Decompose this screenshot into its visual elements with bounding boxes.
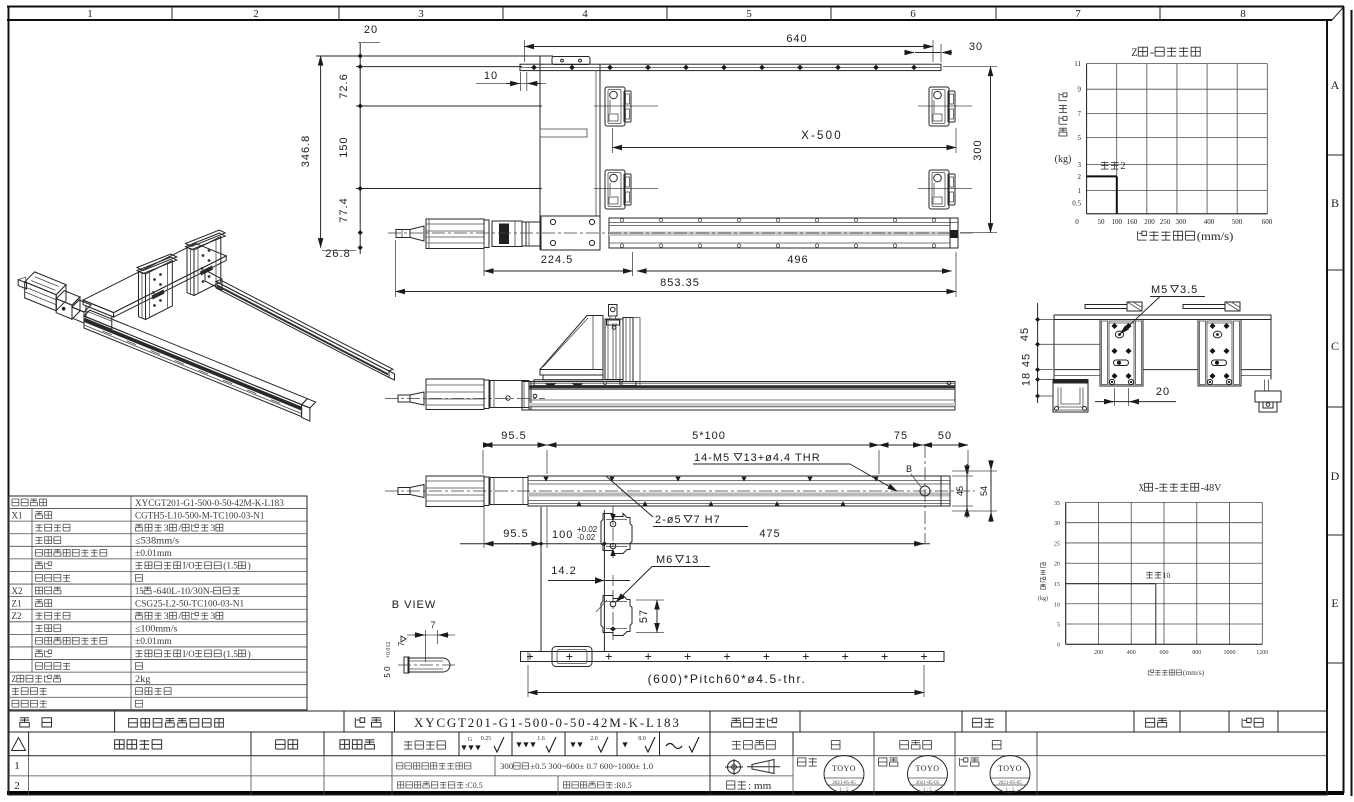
svg-text:2.0: 2.0	[590, 736, 598, 742]
svg-text:X2: X2	[12, 586, 23, 596]
svg-text:X: X	[1139, 483, 1145, 494]
svg-text:C: C	[1331, 339, 1339, 353]
svg-text:XYCGT201-G1-500-0-50-42M-K-L18: XYCGT201-G1-500-0-50-42M-K-L183	[414, 715, 681, 730]
svg-text:7: 7	[1075, 8, 1081, 20]
svg-text:10: 10	[484, 70, 498, 82]
svg-text:95.5: 95.5	[501, 430, 526, 442]
svg-text:2: 2	[14, 780, 20, 792]
svg-text:CSG25-L2-50-TC100-03-N1: CSG25-L2-50-TC100-03-N1	[135, 598, 245, 608]
svg-text:10: 10	[1163, 570, 1170, 580]
svg-text:13+ø4.4 THR: 13+ø4.4 THR	[744, 452, 821, 464]
svg-text:1.6: 1.6	[537, 736, 545, 742]
svg-text:±0.01mm: ±0.01mm	[135, 636, 172, 646]
svg-text:-640L-10/30N-: -640L-10/30N-	[153, 586, 213, 596]
svg-text:5: 5	[1078, 134, 1082, 142]
svg-text:20: 20	[1054, 562, 1060, 568]
svg-text:7: 7	[1078, 110, 1082, 118]
svg-text:4: 4	[582, 8, 588, 20]
svg-text:400: 400	[1204, 218, 1215, 226]
svg-text:I/O: I/O	[183, 649, 195, 659]
svg-text:2021-05-05: 2021-05-05	[916, 781, 940, 786]
svg-text:200: 200	[1094, 650, 1103, 656]
svg-text:5: 5	[746, 8, 752, 20]
svg-text:: mm: : mm	[748, 780, 772, 792]
svg-text:TOYO: TOYO	[998, 764, 1022, 773]
svg-text:5: 5	[1057, 623, 1060, 629]
svg-text:/: /	[178, 611, 182, 621]
svg-text:100: 100	[1112, 218, 1123, 226]
svg-text:853.35: 853.35	[660, 277, 700, 289]
svg-text:9: 9	[1078, 86, 1082, 94]
svg-text:M6: M6	[656, 554, 673, 566]
svg-text:346.8: 346.8	[300, 135, 312, 168]
svg-text:3: 3	[210, 611, 216, 621]
svg-text:CGTH5-L10-500-M-TC100-03-N1: CGTH5-L10-500-M-TC100-03-N1	[135, 510, 265, 520]
svg-text:±0.5 300~600± 0.7 600~1000±: ±0.5 300~600± 0.7 600~1000± 1.0	[530, 761, 653, 771]
svg-text:G: G	[468, 737, 473, 743]
svg-text:1: 1	[87, 8, 93, 20]
svg-text:0.5: 0.5	[1072, 199, 1081, 207]
svg-text:0: 0	[1057, 642, 1060, 648]
svg-text:150: 150	[338, 136, 350, 157]
svg-text:0.25: 0.25	[481, 736, 492, 742]
svg-text:Z2: Z2	[12, 611, 22, 621]
svg-text:11: 11	[1074, 60, 1081, 68]
svg-text:B VIEW: B VIEW	[392, 599, 437, 611]
svg-text:2-ø5: 2-ø5	[655, 514, 682, 526]
svg-text:0: 0	[1075, 218, 1079, 226]
svg-text:72.6: 72.6	[338, 73, 350, 98]
svg-text:TOYO: TOYO	[832, 764, 856, 773]
svg-text:TOYO: TOYO	[915, 764, 939, 773]
svg-text:3: 3	[164, 611, 170, 621]
svg-text:45: 45	[1021, 353, 1033, 367]
svg-text:20: 20	[364, 24, 378, 36]
svg-text:475: 475	[759, 528, 780, 540]
svg-text:2021-05-05: 2021-05-05	[998, 781, 1022, 786]
svg-text:B: B	[906, 464, 912, 474]
svg-text:): )	[248, 649, 251, 659]
svg-text:+0.012: +0.012	[386, 642, 392, 659]
svg-text:200: 200	[1144, 218, 1155, 226]
svg-text:I/O: I/O	[183, 561, 195, 571]
svg-text:3: 3	[210, 523, 216, 533]
svg-text:45: 45	[955, 486, 965, 496]
svg-text:77.4: 77.4	[338, 197, 350, 222]
svg-text:5 0: 5 0	[383, 666, 392, 678]
svg-text:-48V: -48V	[1201, 483, 1222, 494]
svg-text:1000: 1000	[1224, 650, 1236, 656]
svg-text:26.8: 26.8	[325, 248, 350, 260]
svg-text:-: -	[1150, 45, 1155, 59]
svg-text:7 H7: 7 H7	[694, 514, 721, 526]
svg-text:50: 50	[938, 430, 952, 442]
svg-text:(1.5: (1.5	[223, 561, 238, 571]
svg-text:3: 3	[164, 523, 170, 533]
svg-text:2: 2	[1078, 173, 1082, 181]
svg-text:10: 10	[1054, 602, 1060, 608]
svg-text:X1: X1	[12, 510, 23, 520]
svg-text:8.0: 8.0	[638, 736, 646, 742]
svg-text::C0.5: :C0.5	[465, 780, 483, 790]
svg-text:/: /	[178, 523, 182, 533]
svg-text:25: 25	[1054, 541, 1060, 547]
svg-text:5*100: 5*100	[692, 430, 726, 442]
svg-text:30: 30	[1054, 521, 1060, 527]
svg-text:95.5: 95.5	[503, 528, 528, 540]
svg-text:≤538mm/s: ≤538mm/s	[135, 536, 179, 546]
svg-text:2021-05-05: 2021-05-05	[832, 781, 856, 786]
svg-text:57: 57	[638, 609, 650, 623]
svg-text:±0.01mm: ±0.01mm	[135, 548, 172, 558]
svg-text:15: 15	[135, 586, 144, 596]
svg-text:-: -	[1155, 483, 1160, 494]
svg-text:160: 160	[1127, 218, 1138, 226]
svg-text:600: 600	[1262, 218, 1273, 226]
svg-text:2kg: 2kg	[135, 674, 151, 684]
svg-text:30: 30	[969, 41, 983, 53]
svg-text:800: 800	[1192, 650, 1201, 656]
svg-text:35: 35	[1054, 501, 1060, 507]
svg-text:100: 100	[552, 529, 573, 541]
svg-text:1: 1	[14, 760, 20, 772]
svg-text:3: 3	[418, 8, 424, 20]
svg-text:54: 54	[979, 486, 989, 496]
svg-text:Z: Z	[12, 674, 17, 684]
svg-text:1: 1	[1078, 187, 1082, 195]
svg-text:600: 600	[1160, 650, 1169, 656]
svg-text:D: D	[1331, 469, 1340, 483]
svg-text:X-500: X-500	[801, 130, 843, 142]
svg-text:-0.02: -0.02	[577, 533, 596, 542]
svg-text:8: 8	[1240, 8, 1246, 20]
svg-text:(mm/s): (mm/s)	[1197, 229, 1234, 243]
svg-text:(1.5: (1.5	[223, 649, 238, 659]
svg-text:6: 6	[910, 8, 916, 20]
svg-text:3.5: 3.5	[1180, 284, 1198, 296]
svg-text:300: 300	[1175, 218, 1186, 226]
svg-text:M5: M5	[1151, 284, 1168, 296]
svg-text:(mm/s): (mm/s)	[1183, 669, 1205, 677]
svg-text:250: 250	[1160, 218, 1171, 226]
svg-text:50: 50	[1098, 218, 1106, 226]
svg-text:14-M5: 14-M5	[694, 452, 730, 464]
svg-text:B: B	[1331, 196, 1339, 210]
svg-text:2: 2	[1120, 161, 1125, 172]
svg-text:(kg): (kg)	[1038, 595, 1048, 602]
svg-text:): )	[248, 561, 251, 571]
svg-text:15: 15	[1054, 582, 1060, 588]
svg-text:18: 18	[1021, 372, 1033, 386]
svg-text:400: 400	[1127, 650, 1136, 656]
svg-text:1 : 5: 1 : 5	[840, 788, 849, 793]
svg-text:E: E	[1331, 596, 1338, 610]
svg-text:496: 496	[787, 254, 808, 266]
svg-text:1 : 5: 1 : 5	[923, 788, 932, 793]
svg-text:300: 300	[972, 139, 984, 160]
svg-text:Z1: Z1	[12, 598, 22, 608]
svg-text:1 : 5: 1 : 5	[1006, 788, 1015, 793]
svg-text:500: 500	[1232, 218, 1243, 226]
svg-text:224.5: 224.5	[541, 254, 574, 266]
svg-text:XYCGT201-G1-500-0-50-42M-K-L18: XYCGT201-G1-500-0-50-42M-K-L183	[135, 498, 284, 508]
svg-text:14.2: 14.2	[551, 565, 576, 577]
svg-text:13: 13	[685, 554, 699, 566]
svg-text:640: 640	[786, 33, 807, 45]
svg-text:20: 20	[1156, 386, 1170, 398]
svg-text:≤100mm/s: ≤100mm/s	[135, 624, 178, 634]
svg-text:75: 75	[894, 430, 908, 442]
svg-text::R0.5: :R0.5	[614, 780, 632, 790]
svg-text:(kg): (kg)	[1055, 154, 1072, 165]
svg-text:300: 300	[500, 761, 513, 771]
svg-text:2: 2	[253, 8, 259, 20]
svg-text:45: 45	[1019, 327, 1031, 341]
svg-text:1200: 1200	[1256, 650, 1268, 656]
svg-text:(600)*Pitch60*ø4.5-thr.: (600)*Pitch60*ø4.5-thr.	[648, 672, 807, 686]
svg-text:Z: Z	[1131, 45, 1137, 59]
svg-text:3: 3	[1078, 161, 1082, 169]
svg-text:A: A	[1331, 78, 1340, 92]
svg-text:7: 7	[430, 620, 435, 630]
